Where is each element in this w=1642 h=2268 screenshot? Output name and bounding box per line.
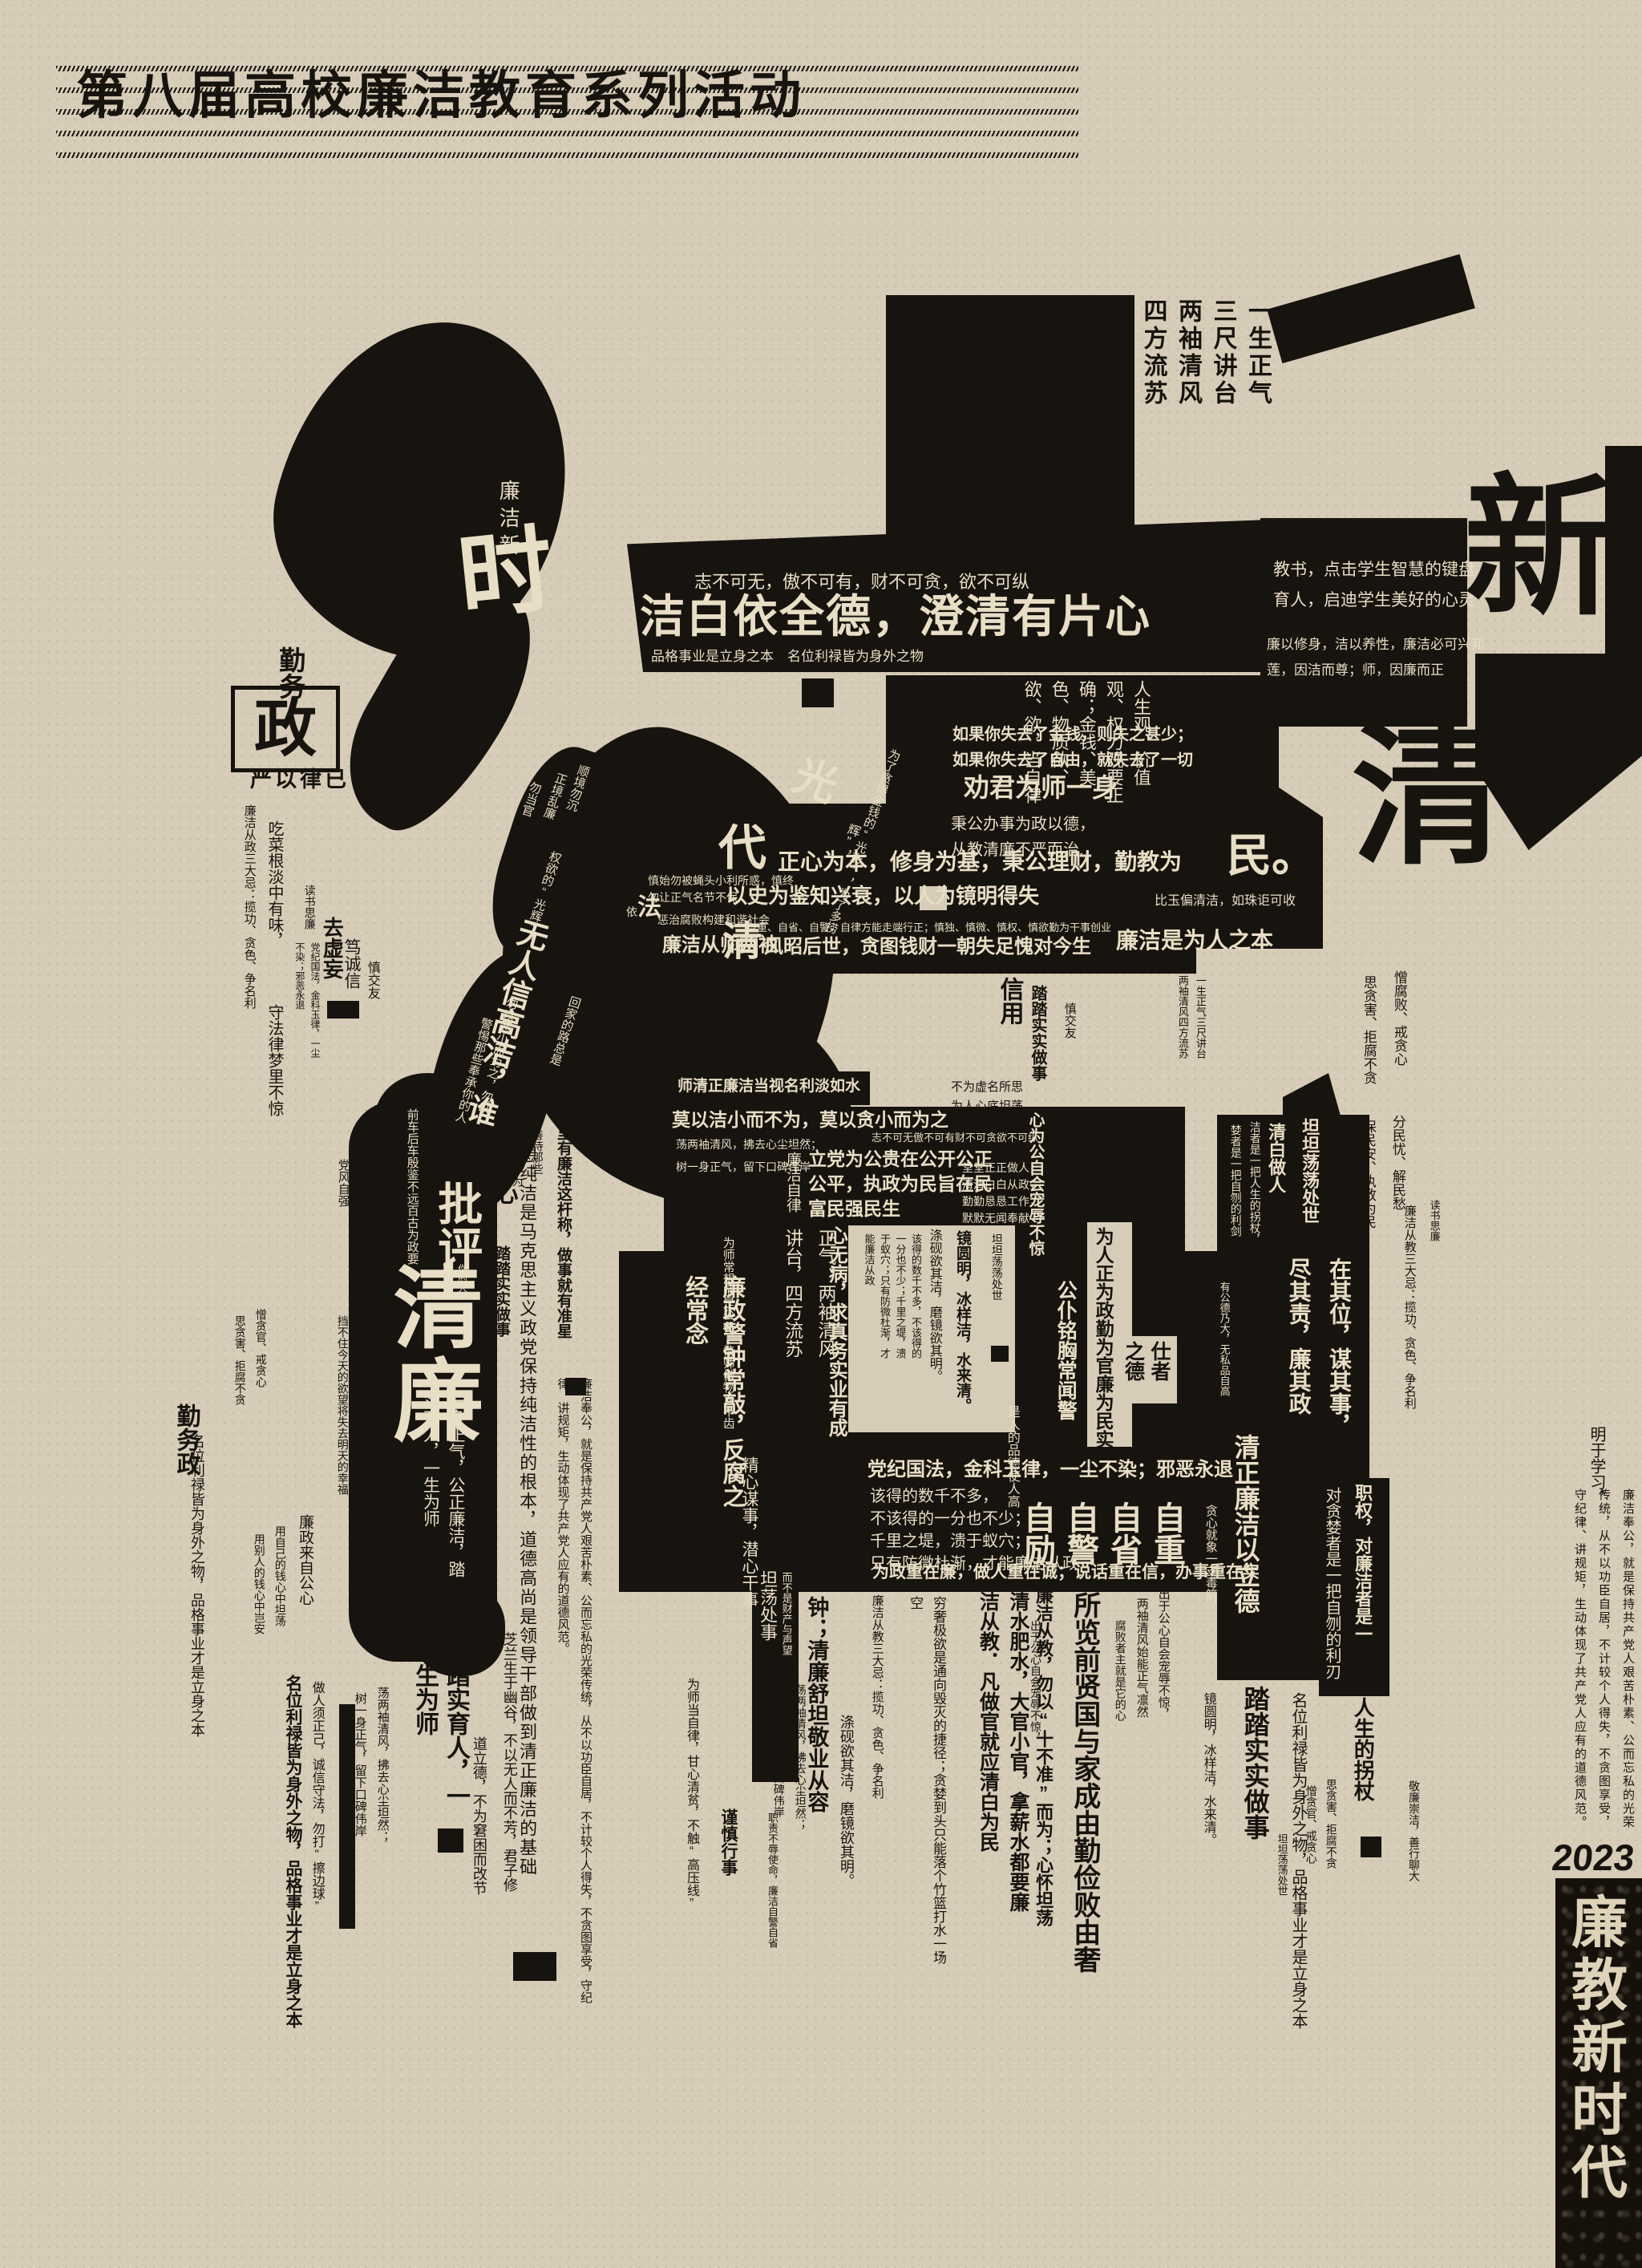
tree-uprightness-column: 树一身正气，留下口碑伟岸: [354, 1692, 366, 1925]
self-discipline-line: 自重、自省、自警、自律方能走端行正；慎独、慎微、慎权、慎欲勤为干事创业: [746, 922, 1111, 934]
clean-teacher-line-b: 风昭后世，贪图钱财一朝失足愧对今生: [764, 937, 1091, 957]
dignified-conduct-lines: 堂堂正正做人， 清清白白从政， 勤勤恳恳工作， 默默无闻奉献: [962, 1160, 1041, 1227]
character-career-line: 品格事业是立身之本 名位利禄皆为身外之物: [651, 650, 924, 664]
lose-money-freedom: 如果你失去了金钱，则失之甚少； 如果你失去了自由，就失去了一切: [952, 722, 1193, 773]
integrity-root-line: 廉洁是为人之本: [1116, 929, 1273, 952]
guang-character: 光: [787, 752, 843, 810]
advise-teacher-line: 劝君为师一身: [964, 775, 1118, 802]
era-slogan: 廉教新时代: [1565, 1893, 1624, 2262]
sleeves-awe-column: 两袖清风始能正气凛然: [1135, 1598, 1148, 1838]
greedy-blade-column: 对贪婪者是一把自刎的利刃: [1323, 1487, 1340, 1697]
two-sleeves-column: 荡两袖清风，拂去心尘坦然；: [376, 1687, 389, 1927]
open-conduct-column-2: 坦坦荡荡处世: [1300, 1118, 1319, 1250]
xin-character: 新: [1464, 469, 1616, 630]
refuse-bribe-column-3: 思贪害、拒腐不贪: [1325, 1779, 1337, 1931]
thrift-ruin-column: 所览前贤国与家成由勤俭败由奢: [1070, 1591, 1098, 1952]
duchengxin-motto: 笃诚信: [342, 938, 360, 1010]
teacher-strip-text: 师清正廉洁当视名利淡如水: [677, 1079, 860, 1095]
mirror-ice-water-column-2: 镜圆明，冰样洁，水来清。: [1201, 1692, 1215, 1885]
public-virtue-column: 有公德乃大，无私品自高: [1219, 1282, 1230, 1490]
two-sleeves-line: 荡两袖清风，拂去心尘坦然；: [676, 1139, 822, 1151]
teaching-slogan: 教书，点击学生智慧的键盘 育人，启迪学生美好的心灵: [1273, 555, 1475, 616]
power-crutch-column: 职权，对廉洁者是一: [1353, 1484, 1372, 1692]
three-taboos-teaching-2: 廉洁从教三大忌：揽功、贪色、争名利: [871, 1594, 884, 1971]
history-mirror-line: 以史为鉴知兴衰，以人为镜明得失: [726, 885, 1039, 907]
everyone-integrity-columns: 人人廉政腐败灭亡；人人欲虽不可去，求应有所节: [319, 1145, 382, 1306]
high-voltage-columns: 为师当自律，甘心清贫，不触“高压线”: [654, 1678, 702, 1942]
jade-pearl-line: 比玉偏清洁，如珠讵可收: [1155, 895, 1296, 909]
careful-planning-column: 精心谋事，潜心干事: [740, 1456, 758, 1657]
cautious-conduct-column: 谨慎行事: [719, 1808, 737, 1953]
in-position-columns: 在其位，谋其事，尽其责，廉其政: [1239, 1258, 1359, 1458]
extravagance-columns: 穷奢极欲是通向毁灭的捷径；贪婪到头只能落个竹篮打水一场空: [898, 1596, 949, 1965]
protect-people-column: 保民安、执教为民: [1361, 1120, 1375, 1296]
vegetable-root-motto: 吃菜根淡中有味，: [265, 820, 282, 1005]
fame-external-column: 名位利禄皆为身外之物，品格事业才是立身之本: [189, 1434, 204, 1723]
dushu-column-3: 读书思廉: [1429, 1200, 1440, 1264]
shi-character: 时: [454, 520, 558, 630]
alarm-bell-columns: 廉政警钟常敲，反腐之经常念: [670, 1275, 750, 1508]
teach-text-block: [1260, 518, 1467, 727]
four-nots-line: 志不可无，傲不可有，财不可贪，欲不可纵: [694, 573, 1029, 591]
lotus-slogan: 廉以修身，洁以养性，廉洁必可兴邦 莲，因洁而尊；师，因廉而正: [1267, 632, 1485, 684]
ink-chip: [1494, 678, 1526, 707]
tata-column-right: 踏踏实实做事: [1241, 1686, 1268, 2007]
piping-blob-bottom: [413, 1584, 505, 1676]
party-law-motto: 党纪国法，金科玉律，一尘不染；邪恶永退: [289, 942, 322, 1063]
nurture-teacher-columns: 踏实育人，一生为师: [414, 1663, 471, 1824]
zheng-box: 政: [231, 686, 340, 772]
past-lessons-column: 前车后车殷鉴不远百古为政要: [406, 1108, 419, 1269]
duty-honor-columns: 职责不辱使命，廉洁自警自省: [739, 1812, 781, 1997]
official-virtue-columns: 仕者之德: [1116, 1341, 1172, 1394]
respect-integrity-columns: 敬廉崇洁，善行聊大: [1379, 1780, 1424, 1909]
poison-arrow-column: 腐败者主就是它的心: [1114, 1620, 1126, 1861]
two-sleeves-column-2: 荡两袖清风，拂去心尘坦然；: [795, 1684, 807, 1941]
deserved-amount-columns: 该得的数千不多，不该得的一分也不少；千里之堤，溃于蚁穴；只有防微杜渐，才能廉洁从…: [851, 1233, 924, 1368]
ink-chip: [802, 678, 834, 707]
hate-greed-column-2: 憎贪官、戒贪心: [1305, 1785, 1317, 1926]
duchengxin-column-2: 笃诚信: [704, 978, 718, 1043]
main-slogan: 洁白依全德，澄清有片心: [640, 593, 1151, 641]
title-hatch-line: [56, 131, 1078, 136]
wei-character: 为: [645, 1067, 672, 1096]
clean-person-column: 清白做人: [1267, 1123, 1285, 1215]
life-crutch-column: 人生的拐杖: [1352, 1697, 1373, 1833]
qing-mid-character: 清: [722, 921, 762, 963]
ink-chip: [438, 1829, 463, 1853]
law-dream-motto: 守法律梦里不惊: [265, 1004, 282, 1164]
open-conduct-column: 坦坦荡荡处世: [991, 1233, 1003, 1338]
calm-conduct-column: 坦荡处事: [758, 1570, 777, 1691]
xin-diagonal-band: [1267, 254, 1475, 363]
integrity-scale-column: 心里有廉洁这杆称，做事就有准星: [555, 1110, 571, 1375]
others-money-column: 用别人的钱心中岂安: [253, 1533, 265, 1774]
page-title: 第八届高校廉洁教育系列活动: [76, 69, 806, 123]
year-label: 2023: [1550, 1838, 1636, 1877]
xinyong-column: 信用: [997, 977, 1022, 1037]
refuse-bribe-column: 思贪害、拒腐不贪: [234, 1315, 246, 1468]
no-vain-fame-line: 不为虚名所思 为人心底坦荡: [951, 1078, 1023, 1116]
party-law-row: 党纪国法，金科玉律，一尘不染；邪恶永退: [868, 1460, 1233, 1480]
left-ink-bar: [339, 1704, 355, 1929]
three-taboos-politics: 廉洁从政三大忌：揽功、贪色、争名利: [243, 804, 256, 1037]
bell-serenity-column: 钟；清廉舒坦敬业从容: [805, 1596, 827, 1893]
cross-vertical-arm: [886, 295, 1134, 536]
integrity-virtue-column: 清正廉洁以立德: [1231, 1434, 1259, 1675]
mirror-ice-water-column: 镜圆明，冰样洁，水来清。: [954, 1230, 970, 1423]
yi-small: 依: [626, 906, 637, 918]
public-heart-column-b: 出于公心自会宠辱不惊，: [1157, 1588, 1170, 1820]
quxuwang-motto: 去虚妄: [321, 917, 342, 1001]
moyi-slogan: 莫以洁小而不为，莫以贪小而为之: [672, 1110, 948, 1129]
not-wealth-column: 而不是财产与声望: [781, 1572, 792, 1680]
fame-career-column-2: 名位利禄皆为身外之物，品格事业才是立身之本: [1289, 1692, 1306, 2029]
zheng-character: 政: [254, 696, 317, 762]
orchid-valley-column: 芝兰生于幽谷，不以无人而不芳，君子修: [502, 1632, 517, 1985]
fame-career-column: 名位利禄皆为身外之物，品格事业才是立身之本: [284, 1675, 301, 2011]
ten-rules-column: 廉洁从教，勿以“十不准”而为；心怀坦荡: [1034, 1586, 1053, 1971]
no-illness-column: 心无病，求真务实业有成: [826, 1225, 846, 1506]
yanyi-motto: 严以律已: [250, 768, 350, 791]
greed-arrow-column: 贪心就象一支毒箭，: [1204, 1505, 1217, 1721]
min-character: 民。: [1227, 832, 1316, 880]
poster-canvas: 第八届高校廉洁教育系列活动 廉洁新 时 勤务 政 严以律已 廉洁从政三大忌：揽功…: [0, 0, 1642, 2268]
ink-chip: [991, 1346, 1009, 1362]
xiushen-column: 修身敬业: [766, 978, 777, 1059]
four-virtue-mini-columns: 一生正气三尺讲台两袖清风四方流苏: [1132, 975, 1209, 1063]
hate-greed-column: 憎贪官、戒贪心: [255, 1309, 267, 1445]
upright-diligent-column: 为人正为政勤为官廉为民实: [1094, 1227, 1113, 1442]
virtue-poverty-column: 道立德，不为窘困而改节: [471, 1736, 487, 2073]
dai-character: 代: [718, 823, 766, 873]
hate-corruption-column: 憎腐败、戒贪心: [1392, 970, 1406, 1131]
four-nots-compact: 志不可无傲不可有财不可贪欲不可纵: [872, 1132, 1038, 1144]
lianjie-fenggong-right: 廉洁奉公，就是保持共产党人艰苦朴素、公而忘私的光荣传统，从不以功臣自居，不计较个…: [1399, 1488, 1640, 1837]
tata-column-left: 踏踏实实做事: [493, 1245, 509, 1398]
upright-teacher-columns: 一身正气，公正廉洁，踏实育人，一生为师: [415, 1392, 468, 1585]
shenjiaoyou-motto: 慎交友: [365, 961, 378, 1017]
reading-motto: 读书思廉: [304, 885, 316, 945]
open-conduct-column-3: 坦坦荡荡处世: [1276, 1833, 1288, 1954]
four-virtue-columns: 一生正气三尺讲台两袖清风四方流苏: [1138, 298, 1275, 419]
shenjiaoyou-column-2: 慎交友: [1063, 1002, 1076, 1059]
four-self-columns: 自重 自省 自警 自励: [1012, 1501, 1188, 1586]
lianjie-fenggong-left: 廉洁奉公，就是保持共产党人艰苦朴素、公而忘私的光荣传统，从不以功臣自居，不计较个…: [526, 1378, 597, 2003]
qing-giant-character: 清: [1352, 715, 1506, 877]
desire-warning-column: 挡不住今天的欲望将失去明天的幸福: [337, 1315, 349, 1548]
dushu-column-2: 读书思廉: [744, 980, 755, 1052]
inkstone-mirror-column: 涤砚欲其洁，磨镜欲其明。: [927, 1229, 940, 1426]
title-hatch-line: [56, 152, 1078, 158]
inkstone-mirror-column-2: 涤砚欲其洁，磨镜欲其明。: [839, 1715, 854, 1979]
three-taboos-teaching: 廉洁从教三大忌：揽功、贪色、争名利: [1403, 1205, 1416, 1469]
honest-conduct-column: 做人须正己，诚信守法，勿打“擦边球”: [309, 1681, 323, 1954]
